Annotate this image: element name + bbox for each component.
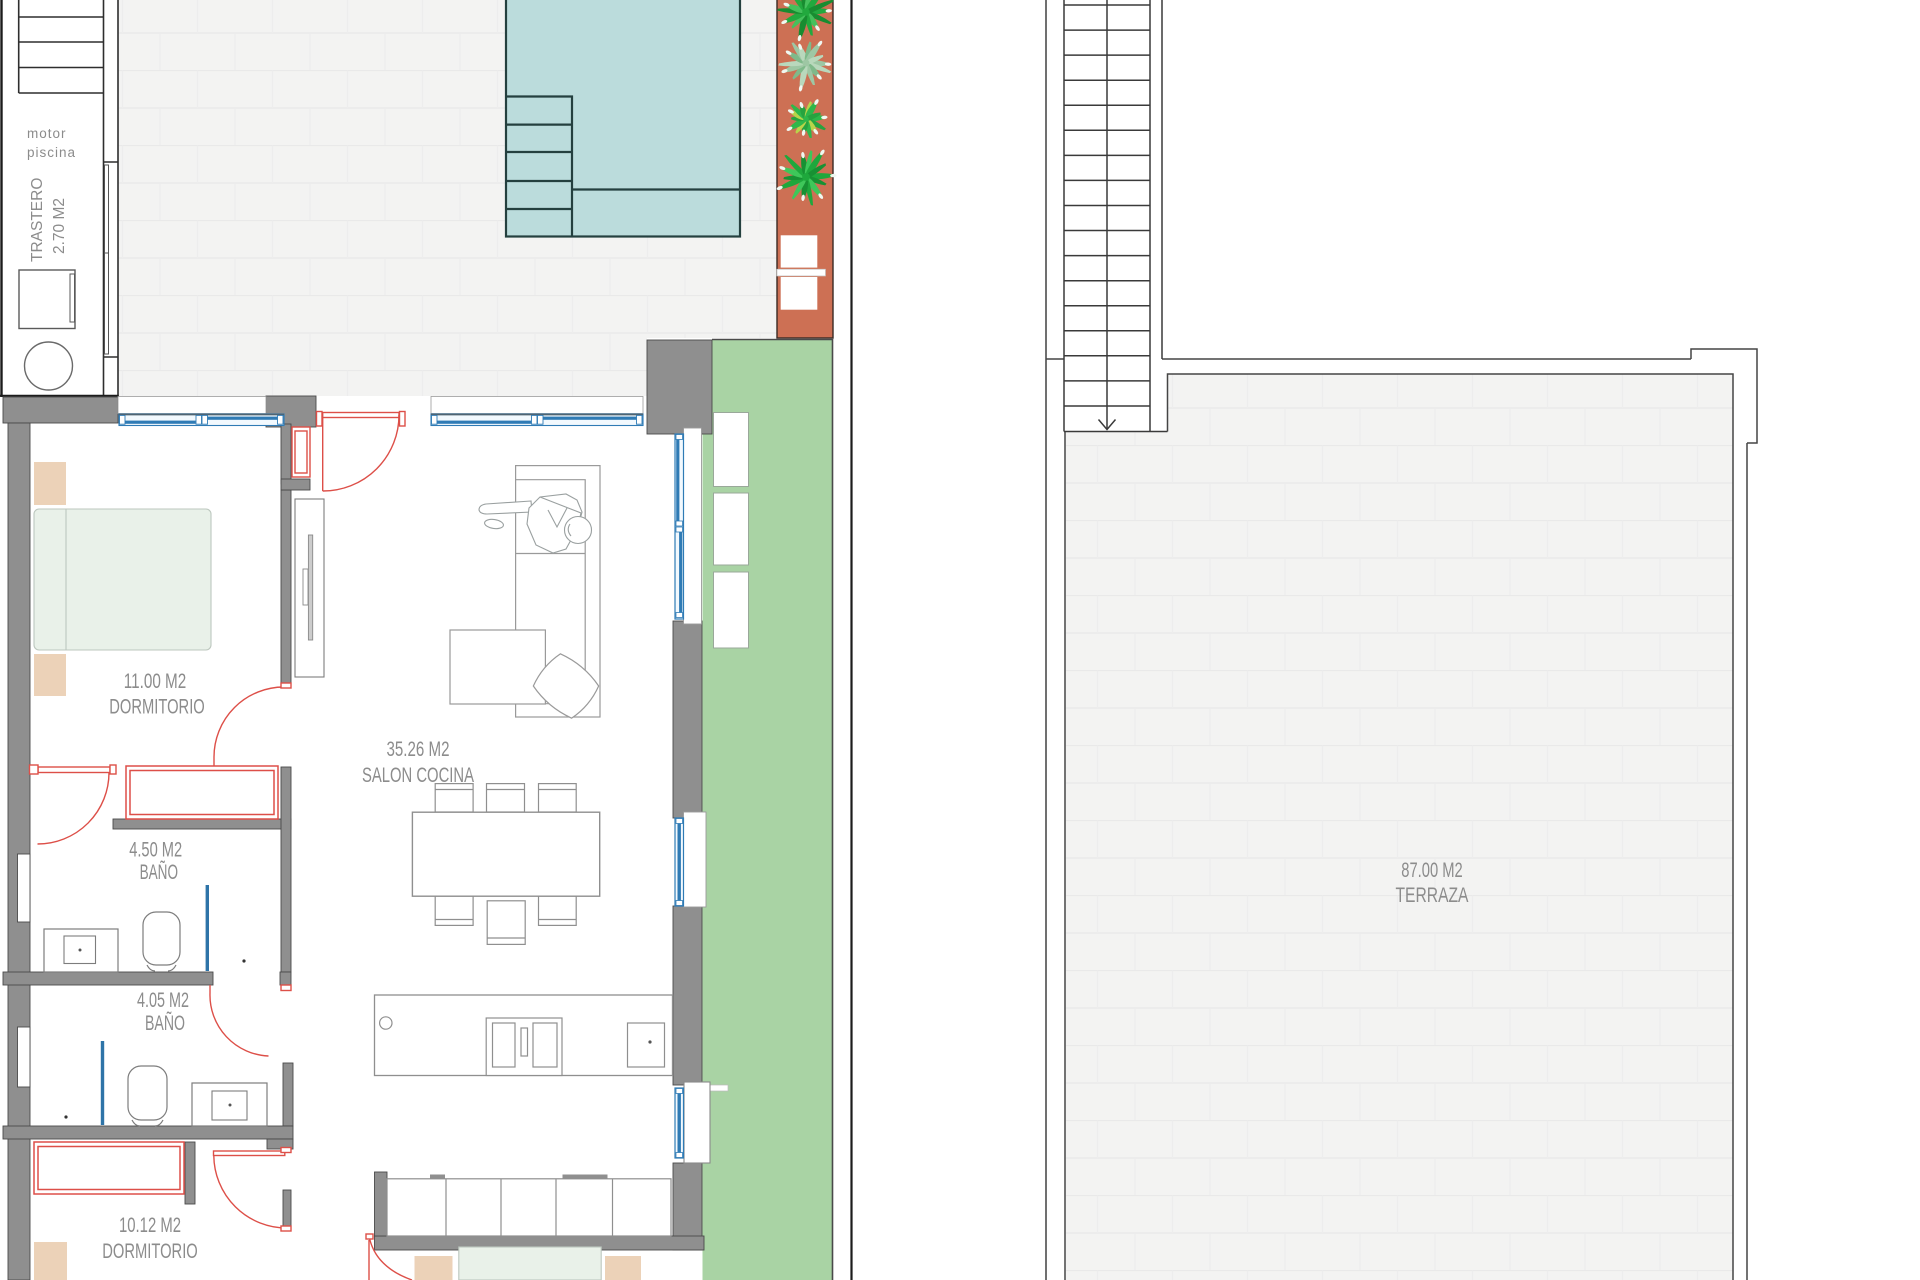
svg-text:BAÑO: BAÑO xyxy=(140,860,178,884)
svg-text:4.50 M2: 4.50 M2 xyxy=(129,839,182,862)
svg-text:87.00 M2: 87.00 M2 xyxy=(1401,859,1463,882)
svg-text:SALON COCINA: SALON COCINA xyxy=(362,764,474,787)
svg-text:11.00 M2: 11.00 M2 xyxy=(124,670,187,693)
svg-text:TRASTERO: TRASTERO xyxy=(29,178,46,262)
svg-text:10.12 M2: 10.12 M2 xyxy=(119,1214,181,1237)
svg-text:2.70 M2: 2.70 M2 xyxy=(51,198,68,254)
svg-text:BAÑO: BAÑO xyxy=(145,1011,185,1035)
svg-text:4.05 M2: 4.05 M2 xyxy=(137,989,189,1012)
svg-text:DORMITORIO: DORMITORIO xyxy=(109,696,205,719)
svg-text:motor: motor xyxy=(27,126,67,141)
svg-text:piscina: piscina xyxy=(27,145,76,160)
svg-text:TERRAZA: TERRAZA xyxy=(1396,884,1469,907)
svg-text:DORMITORIO: DORMITORIO xyxy=(102,1240,198,1263)
svg-text:35.26 M2: 35.26 M2 xyxy=(387,738,450,761)
